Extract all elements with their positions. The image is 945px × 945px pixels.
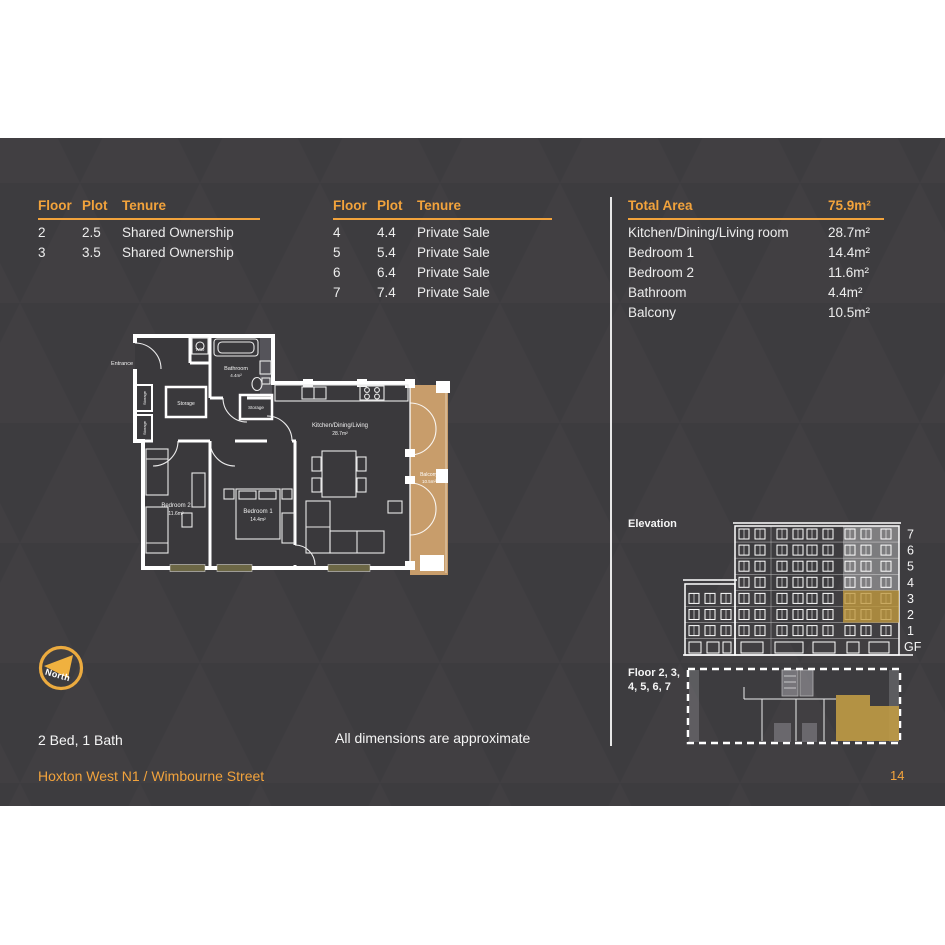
bedroom1-label: Bedroom 1	[243, 509, 273, 515]
floor-label: 3	[907, 592, 914, 606]
key-plan-outline	[688, 669, 900, 743]
balcony-area-label: 10.5m²	[422, 479, 437, 484]
balcony-label: Balcony	[420, 472, 438, 478]
floor-label: GF	[904, 640, 922, 654]
cell-floor: 7	[333, 285, 377, 300]
tenure-table-header: Floor Plot Tenure	[38, 198, 260, 220]
bathroom-area-label: 4.4m²	[230, 373, 242, 378]
entrance-label: Entrance	[111, 361, 133, 367]
compass-graphic	[38, 645, 84, 691]
floor-label: 1	[907, 624, 914, 638]
table-row: 7 7.4 Private Sale	[333, 285, 552, 300]
floor-label: 5	[907, 560, 914, 574]
dimensions-note: All dimensions are approximate	[335, 730, 530, 746]
cell-tenure: Private Sale	[417, 245, 552, 260]
private-sale-highlight	[843, 526, 899, 590]
col-floor: Floor	[333, 198, 377, 213]
total-area-table: Total Area 75.9m² Kitchen/Dining/Living …	[628, 198, 884, 320]
key-plan-title-line2: 4, 5, 6, 7	[628, 680, 688, 694]
table-row: 6 6.4 Private Sale	[333, 265, 552, 280]
cell-plot: 2.5	[82, 225, 122, 240]
kitchen-area-label: 28.7m²	[332, 431, 348, 437]
bed-bath-label: 2 Bed, 1 Bath	[38, 732, 123, 748]
key-plan	[684, 661, 904, 749]
area-row: Bedroom 2 11.6m²	[628, 265, 884, 280]
cell-plot: 4.4	[377, 225, 417, 240]
kitchen-label: Kitchen/Dining/Living	[312, 423, 368, 429]
col-tenure: Tenure	[122, 198, 260, 213]
table-row: 4 4.4 Private Sale	[333, 225, 552, 240]
floor-label: 2	[907, 608, 914, 622]
table-row: 5 5.4 Private Sale	[333, 245, 552, 260]
tenure-table-private: Floor Plot Tenure 4 4.4 Private Sale 5 5…	[333, 198, 552, 300]
table-row: 2 2.5 Shared Ownership	[38, 225, 260, 240]
key-plan-title-line1: Floor 2, 3,	[628, 666, 688, 680]
storage-label: Storage	[248, 405, 264, 410]
shared-ownership-highlight	[843, 590, 899, 622]
area-row: Bedroom 1 14.4m²	[628, 245, 884, 260]
cell-tenure: Private Sale	[417, 265, 552, 280]
footer-address: Hoxton West N1 / Wimbourne Street	[38, 768, 264, 784]
elevation-title: Elevation	[628, 517, 677, 531]
storage-label: Storage	[177, 401, 195, 407]
col-plot: Plot	[82, 198, 122, 213]
wd-label: W/D	[196, 347, 205, 352]
room-area: 10.5m²	[828, 305, 884, 320]
room-area: 4.4m²	[828, 285, 884, 300]
area-row: Bathroom 4.4m²	[628, 285, 884, 300]
floor-plan-fills	[135, 336, 448, 575]
brochure-page: Floor Plot Tenure 2 2.5 Shared Ownership…	[0, 0, 945, 945]
bedroom1-area-label: 14.4m²	[250, 517, 266, 523]
cell-plot: 3.5	[82, 245, 122, 260]
cell-plot: 5.4	[377, 245, 417, 260]
floor-label: 6	[907, 544, 914, 558]
key-plan-balcony	[802, 723, 817, 742]
north-compass: North	[38, 645, 84, 691]
room-label: Balcony	[628, 305, 828, 320]
cell-floor: 4	[333, 225, 377, 240]
floor-label: 7	[907, 528, 914, 542]
key-plan-title: Floor 2, 3, 4, 5, 6, 7	[628, 666, 688, 694]
apartment-floor-plan: Entrance W/D Bathroom 4.4m² Storage Stor…	[110, 323, 470, 593]
bathroom-label: Bathroom	[224, 366, 248, 372]
bedroom2-label: Bedroom 2	[161, 503, 191, 509]
storage-label: Storage	[142, 420, 147, 435]
cell-tenure: Private Sale	[417, 285, 552, 300]
room-label: Bathroom	[628, 285, 828, 300]
elevation-floor-labels: 7 6 5 4 3 2 1 GF	[904, 528, 922, 655]
bedroom2-area-label: 11.6m²	[168, 511, 184, 517]
cell-plot: 7.4	[377, 285, 417, 300]
area-row: Kitchen/Dining/Living room 28.7m²	[628, 225, 884, 240]
page-number: 14	[890, 768, 904, 783]
tenure-table-header: Floor Plot Tenure	[333, 198, 552, 220]
storage-label: Storage	[142, 390, 147, 405]
floor-label: 4	[907, 576, 914, 590]
room-area: 11.6m²	[828, 265, 884, 280]
total-area-header: Total Area 75.9m²	[628, 198, 884, 220]
total-area-label: Total Area	[628, 198, 828, 213]
cell-tenure: Shared Ownership	[122, 225, 260, 240]
total-area-value: 75.9m²	[828, 198, 884, 213]
col-plot: Plot	[377, 198, 417, 213]
section-divider	[610, 197, 612, 746]
tenure-table-shared: Floor Plot Tenure 2 2.5 Shared Ownership…	[38, 198, 260, 260]
cell-floor: 3	[38, 245, 82, 260]
building-elevation: 7 6 5 4 3 2 1 GF	[683, 514, 928, 664]
cell-tenure: Private Sale	[417, 225, 552, 240]
room-area: 28.7m²	[828, 225, 884, 240]
room-area: 14.4m²	[828, 245, 884, 260]
area-row: Balcony 10.5m²	[628, 305, 884, 320]
cell-floor: 6	[333, 265, 377, 280]
stair-core	[782, 670, 798, 696]
cell-floor: 2	[38, 225, 82, 240]
col-floor: Floor	[38, 198, 82, 213]
cell-plot: 6.4	[377, 265, 417, 280]
room-label: Bedroom 2	[628, 265, 828, 280]
table-row: 3 3.5 Shared Ownership	[38, 245, 260, 260]
cell-floor: 5	[333, 245, 377, 260]
elevation-building	[683, 523, 913, 655]
cell-tenure: Shared Ownership	[122, 245, 260, 260]
room-label: Bedroom 1	[628, 245, 828, 260]
col-tenure: Tenure	[417, 198, 552, 213]
key-plan-balcony	[774, 723, 791, 742]
lift-core	[800, 670, 813, 696]
room-label: Kitchen/Dining/Living room	[628, 225, 828, 240]
